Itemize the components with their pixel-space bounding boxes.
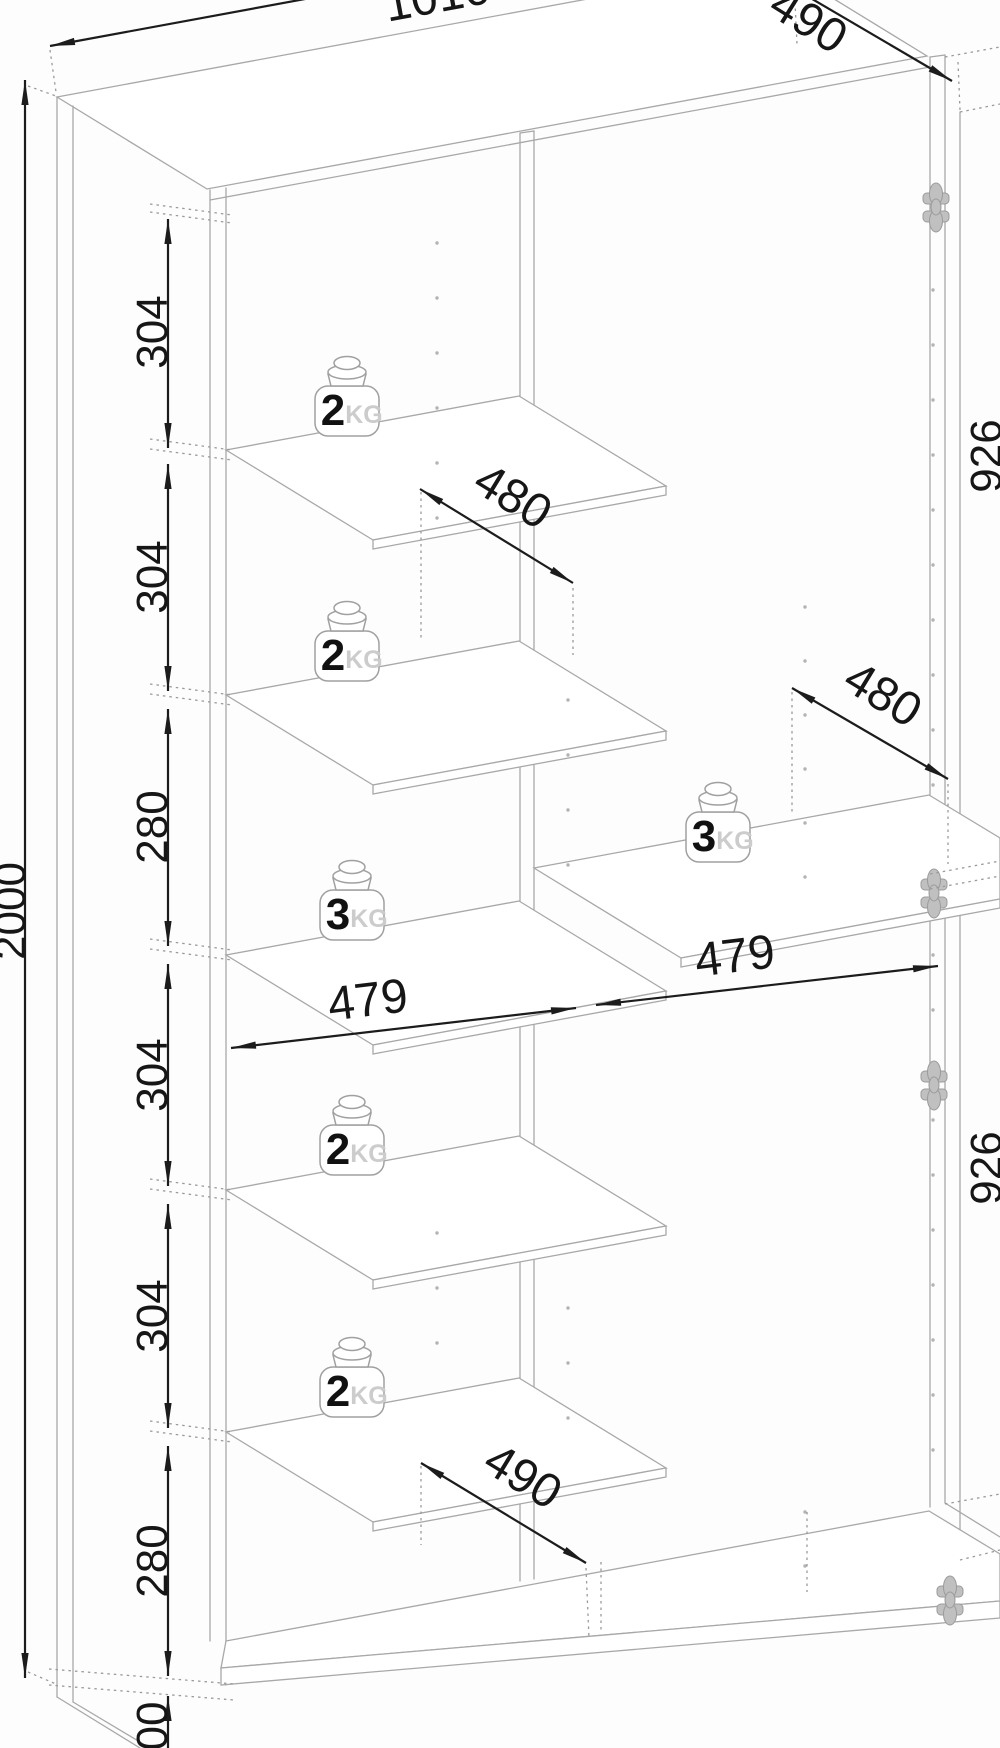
weight-value: 2 [326, 1367, 350, 1416]
label-section-280-1: 280 [128, 790, 177, 863]
label-section-304-2: 304 [128, 540, 177, 613]
bottom-panel [221, 1511, 1000, 1685]
weight-value: 2 [321, 386, 345, 435]
label-section-280-2: 280 [128, 1524, 177, 1597]
label-section-304-1: 304 [128, 295, 177, 368]
weight-2kg-icon-4: 2 KG [320, 1338, 388, 1418]
label-section-304-4: 304 [128, 1279, 177, 1352]
label-section-304-3: 304 [128, 1038, 177, 1111]
hinge-icon-3 [921, 1061, 947, 1110]
label-overall-height: 2000 [0, 862, 35, 960]
label-plinth-height: 00 [128, 1702, 177, 1748]
weight-3kg-icon-2: 3 KG [686, 783, 754, 863]
weight-value: 3 [326, 890, 350, 939]
right-panel-top-edge [930, 55, 945, 57]
weight-unit: KG [350, 905, 388, 933]
wardrobe-technical-drawing: 2 KG 2 KG 3 KG 2 KG 2 KG 3 KG [0, 0, 1000, 1748]
label-depth-480-right: 480 [835, 651, 931, 738]
shelf-left-3 [226, 901, 666, 1054]
weight-unit: KG [350, 1382, 388, 1410]
label-width-479-right: 479 [692, 925, 778, 987]
shelf-left-5 [226, 1378, 666, 1531]
weight-2kg-icon-1: 2 KG [315, 357, 383, 437]
weight-3kg-icon-1: 3 KG [320, 861, 388, 941]
weight-value: 2 [326, 1125, 350, 1174]
label-section-926-bottom: 926 [962, 1131, 1000, 1204]
weight-unit: KG [350, 1140, 388, 1168]
weight-2kg-icon-2: 2 KG [315, 602, 383, 682]
weight-value: 3 [692, 812, 716, 861]
weight-value: 2 [321, 631, 345, 680]
weight-unit: KG [345, 401, 383, 429]
weight-2kg-icon-3: 2 KG [320, 1096, 388, 1176]
shelf-left-2 [226, 641, 666, 794]
weight-unit: KG [716, 827, 754, 855]
shelves [221, 396, 1000, 1685]
weight-unit: KG [345, 646, 383, 674]
label-section-926-top: 926 [962, 419, 1000, 492]
label-width-479-left: 479 [325, 969, 411, 1031]
shelf-left-1 [226, 396, 666, 549]
drawing-canvas: 2 KG 2 KG 3 KG 2 KG 2 KG 3 KG [0, 0, 1000, 1748]
shelf-left-4 [226, 1136, 666, 1289]
